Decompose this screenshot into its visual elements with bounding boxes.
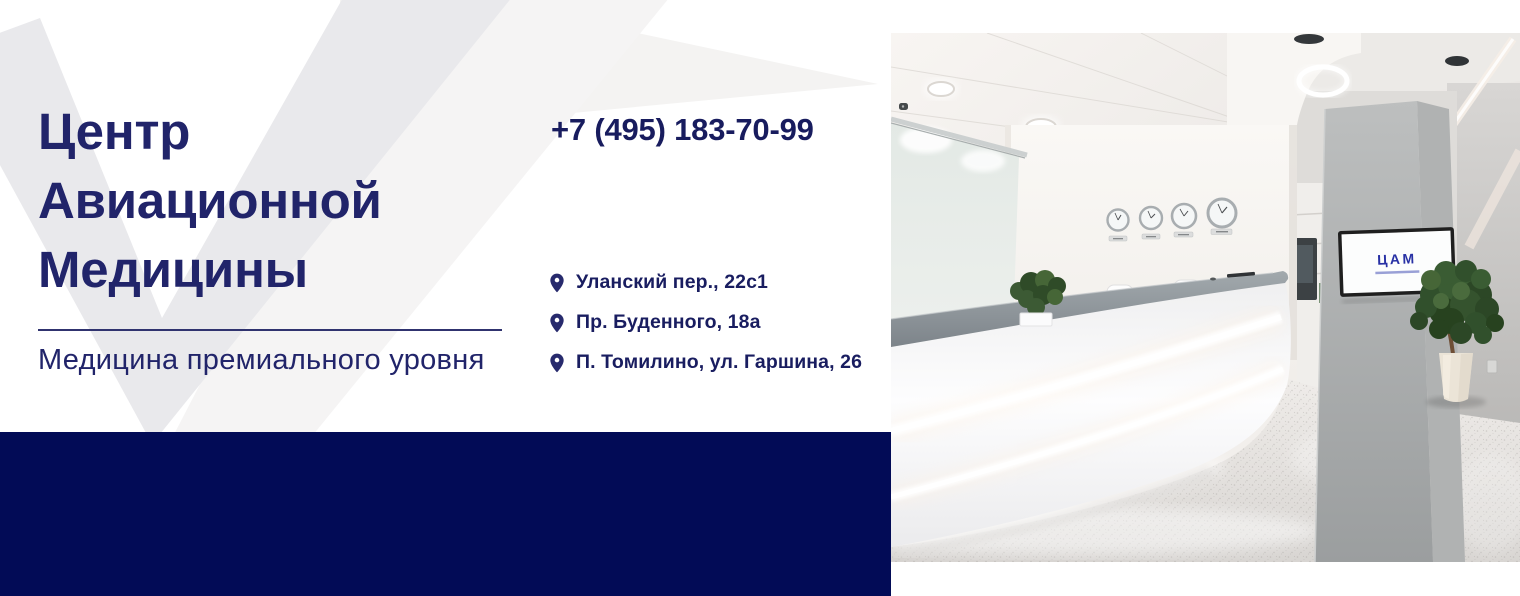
address-label: Уланский пер., 22с1 (576, 271, 768, 294)
clinic-tagline: Медицина премиального уровня (38, 344, 485, 377)
clock (1108, 210, 1129, 242)
address-label: Пр. Буденного, 18а (576, 311, 761, 334)
address-label: П. Томилино, ул. Гаршина, 26 (576, 351, 862, 374)
wall-outlet (1487, 360, 1497, 373)
clinic-interior-photo: ЦАМ (891, 33, 1520, 562)
address-item: Уланский пер., 22с1 (549, 271, 862, 294)
info-panel: ЦентрАвиационнойМедицины Медицина премиа… (0, 0, 891, 596)
clinic-title: ЦентрАвиационнойМедицины (38, 97, 382, 304)
clinic-title-line2: Авиационной (38, 166, 382, 235)
location-pin-icon (549, 273, 565, 293)
clock (1172, 204, 1196, 237)
address-item: П. Томилино, ул. Гаршина, 26 (549, 351, 862, 374)
location-pin-icon (549, 353, 565, 373)
clock (1208, 199, 1236, 235)
title-divider (38, 329, 502, 331)
address-list: Уланский пер., 22с1 Пр. Буденного, 18а П… (549, 271, 862, 391)
address-item: Пр. Буденного, 18а (549, 311, 862, 334)
clock (1140, 207, 1162, 239)
clinic-banner: ЦентрАвиационнойМедицины Медицина премиа… (0, 0, 1520, 596)
bottom-bar (0, 432, 891, 596)
phone-number: +7 (495) 183-70-99 (551, 112, 814, 148)
location-pin-icon (549, 313, 565, 333)
tv-logo-text: ЦАМ (1377, 250, 1417, 267)
clinic-title-line3: Медицины (38, 235, 382, 304)
security-camera (899, 103, 908, 110)
clinic-title-line1: Центр (38, 97, 382, 166)
